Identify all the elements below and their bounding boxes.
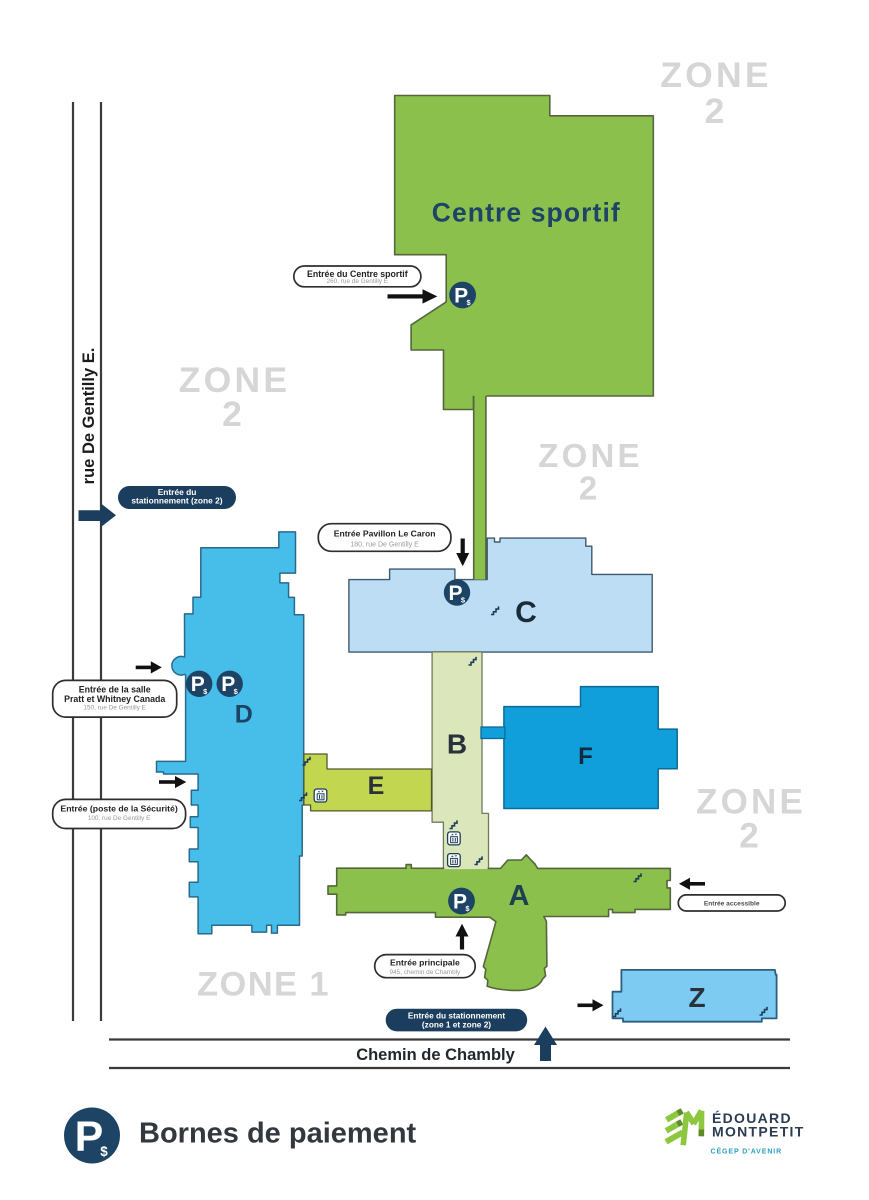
- svg-text:Z: Z: [688, 982, 705, 1013]
- svg-text:Bornes de paiement: Bornes de paiement: [139, 1118, 417, 1150]
- svg-text:ZONE: ZONE: [660, 55, 771, 95]
- svg-text:ZONE 1: ZONE 1: [197, 966, 330, 1004]
- svg-text:(zone 1 et zone 2): (zone 1 et zone 2): [422, 1019, 491, 1029]
- svg-text:F: F: [578, 743, 593, 770]
- svg-text:rue De Gentilly E.: rue De Gentilly E.: [80, 348, 98, 485]
- svg-text:ZONE: ZONE: [538, 437, 642, 474]
- svg-text:A: A: [509, 880, 530, 912]
- svg-text:Pratt et Whitney Canada: Pratt et Whitney Canada: [64, 694, 165, 704]
- svg-text:180, rue De Gentilly E: 180, rue De Gentilly E: [350, 541, 419, 548]
- svg-text:Chemin de Chambly: Chemin de Chambly: [356, 1046, 515, 1064]
- svg-text:945, chemin de Chambly: 945, chemin de Chambly: [390, 969, 461, 976]
- svg-text:stationnement (zone 2): stationnement (zone 2): [131, 496, 222, 506]
- svg-text:2: 2: [579, 470, 597, 507]
- svg-text:Entrée (poste de la Sécurité): Entrée (poste de la Sécurité): [60, 804, 177, 814]
- svg-text:P: P: [75, 1113, 104, 1161]
- svg-text:CÉGEP D'AVENIR: CÉGEP D'AVENIR: [711, 1147, 783, 1156]
- svg-text:Entrée principale: Entrée principale: [390, 958, 460, 968]
- svg-text:B: B: [447, 729, 467, 760]
- svg-text:Centre sportif: Centre sportif: [432, 198, 621, 228]
- svg-text:D: D: [235, 701, 253, 729]
- svg-text:$: $: [100, 1144, 108, 1159]
- svg-text:2: 2: [705, 91, 725, 131]
- svg-text:260, rue de Gentilly E: 260, rue de Gentilly E: [327, 278, 388, 285]
- svg-text:2: 2: [739, 817, 758, 856]
- svg-text:C: C: [515, 596, 537, 629]
- svg-text:MONTPETIT: MONTPETIT: [712, 1123, 805, 1139]
- svg-text:150, rue De Gentilly E: 150, rue De Gentilly E: [83, 705, 146, 712]
- svg-text:E: E: [368, 772, 385, 800]
- svg-text:Entrée Pavillon Le Caron: Entrée Pavillon Le Caron: [334, 529, 436, 539]
- svg-text:Entrée accessible: Entrée accessible: [704, 900, 760, 907]
- svg-text:2: 2: [222, 394, 242, 434]
- svg-text:100, rue De Gentilly E: 100, rue De Gentilly E: [88, 815, 151, 822]
